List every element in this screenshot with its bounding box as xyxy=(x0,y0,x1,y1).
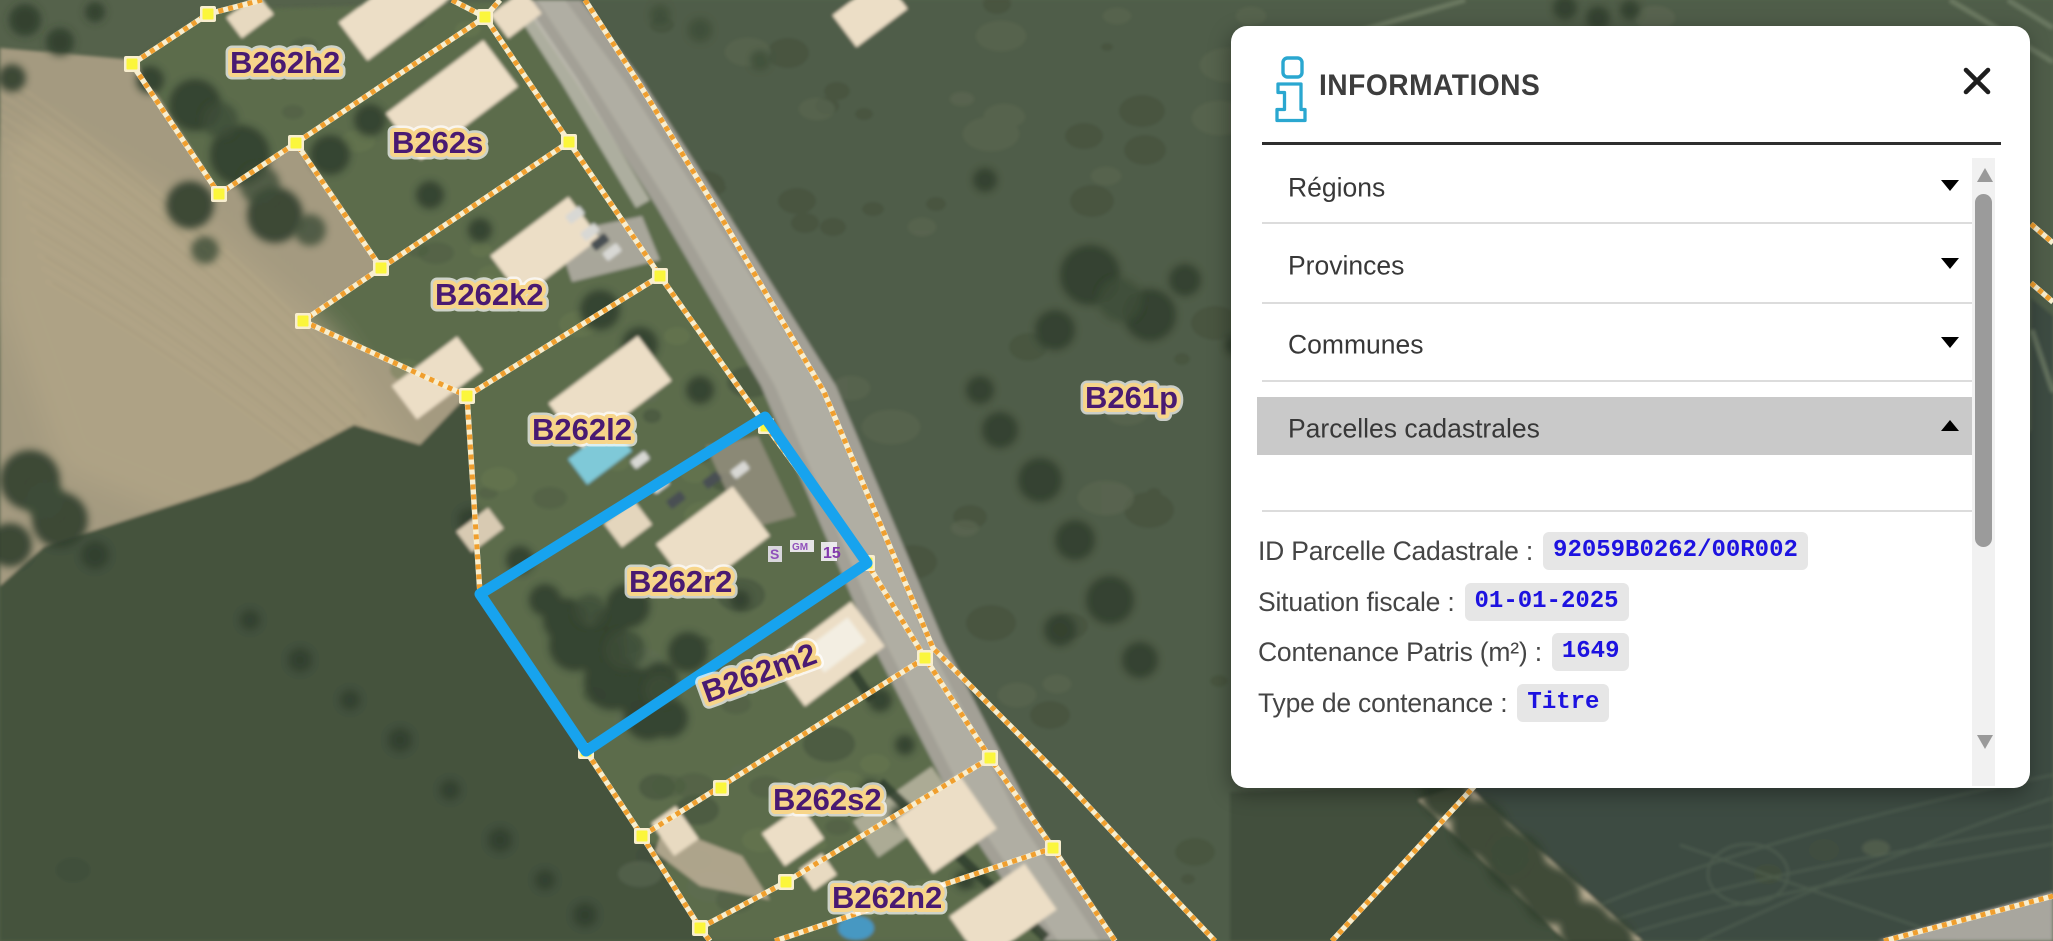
svg-text:B262k2: B262k2 xyxy=(435,277,544,312)
svg-text:S: S xyxy=(770,546,779,562)
svg-text:B262s2: B262s2 xyxy=(773,782,882,817)
svg-text:15: 15 xyxy=(823,545,841,562)
svg-text:B262l2: B262l2 xyxy=(532,412,632,447)
svg-text:B262h2: B262h2 xyxy=(230,45,340,80)
svg-text:B261p: B261p xyxy=(1085,380,1178,415)
svg-text:GM: GM xyxy=(792,542,808,553)
svg-text:B262r2: B262r2 xyxy=(629,564,732,599)
svg-text:B262n2: B262n2 xyxy=(832,880,942,915)
svg-text:B262s: B262s xyxy=(392,125,483,160)
